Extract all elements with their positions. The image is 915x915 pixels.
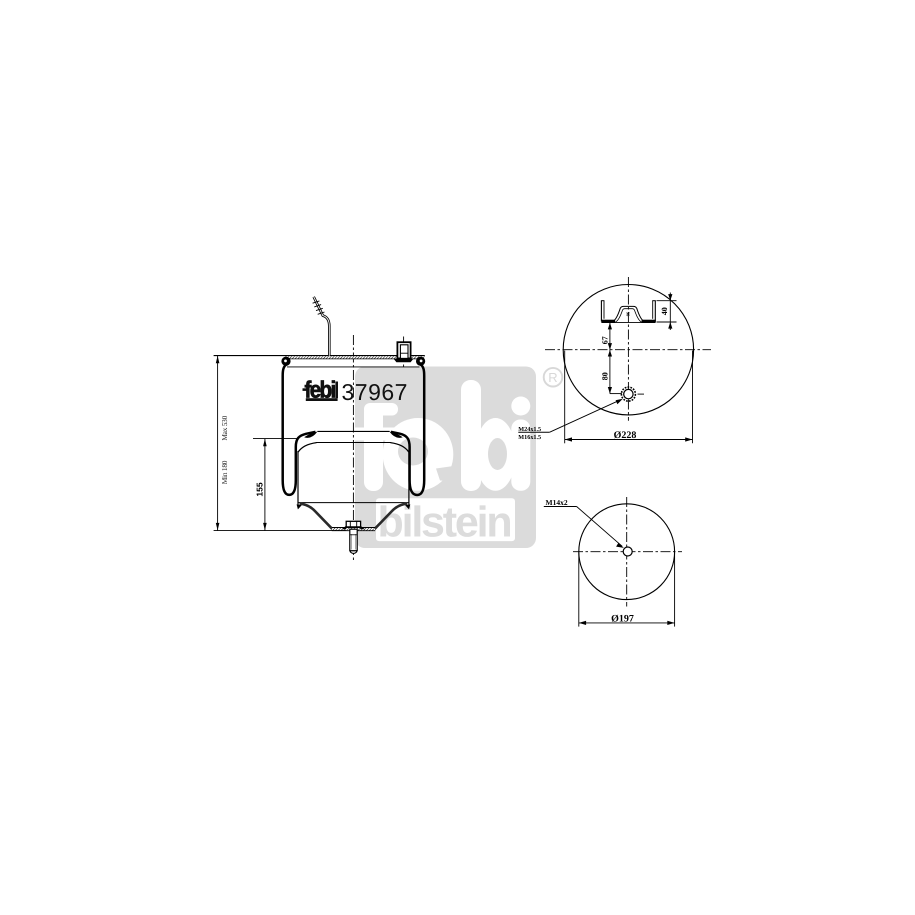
svg-text:Min 180: Min 180 (220, 460, 229, 484)
svg-text:Ø228: Ø228 (614, 430, 637, 441)
svg-text:R: R (548, 370, 557, 385)
svg-text:155: 155 (254, 482, 264, 496)
svg-text:M16x1.5: M16x1.5 (518, 434, 541, 441)
svg-text:37967: 37967 (342, 379, 408, 405)
svg-text:96: 96 (626, 311, 631, 316)
svg-text:80: 80 (600, 372, 609, 380)
svg-text:40: 40 (660, 307, 669, 315)
svg-text:67: 67 (600, 336, 609, 344)
svg-text:Ø197: Ø197 (611, 613, 634, 624)
svg-text:M14x2: M14x2 (546, 498, 568, 507)
svg-text:M24x1.5: M24x1.5 (518, 426, 541, 433)
svg-text:Max 530: Max 530 (220, 415, 229, 440)
